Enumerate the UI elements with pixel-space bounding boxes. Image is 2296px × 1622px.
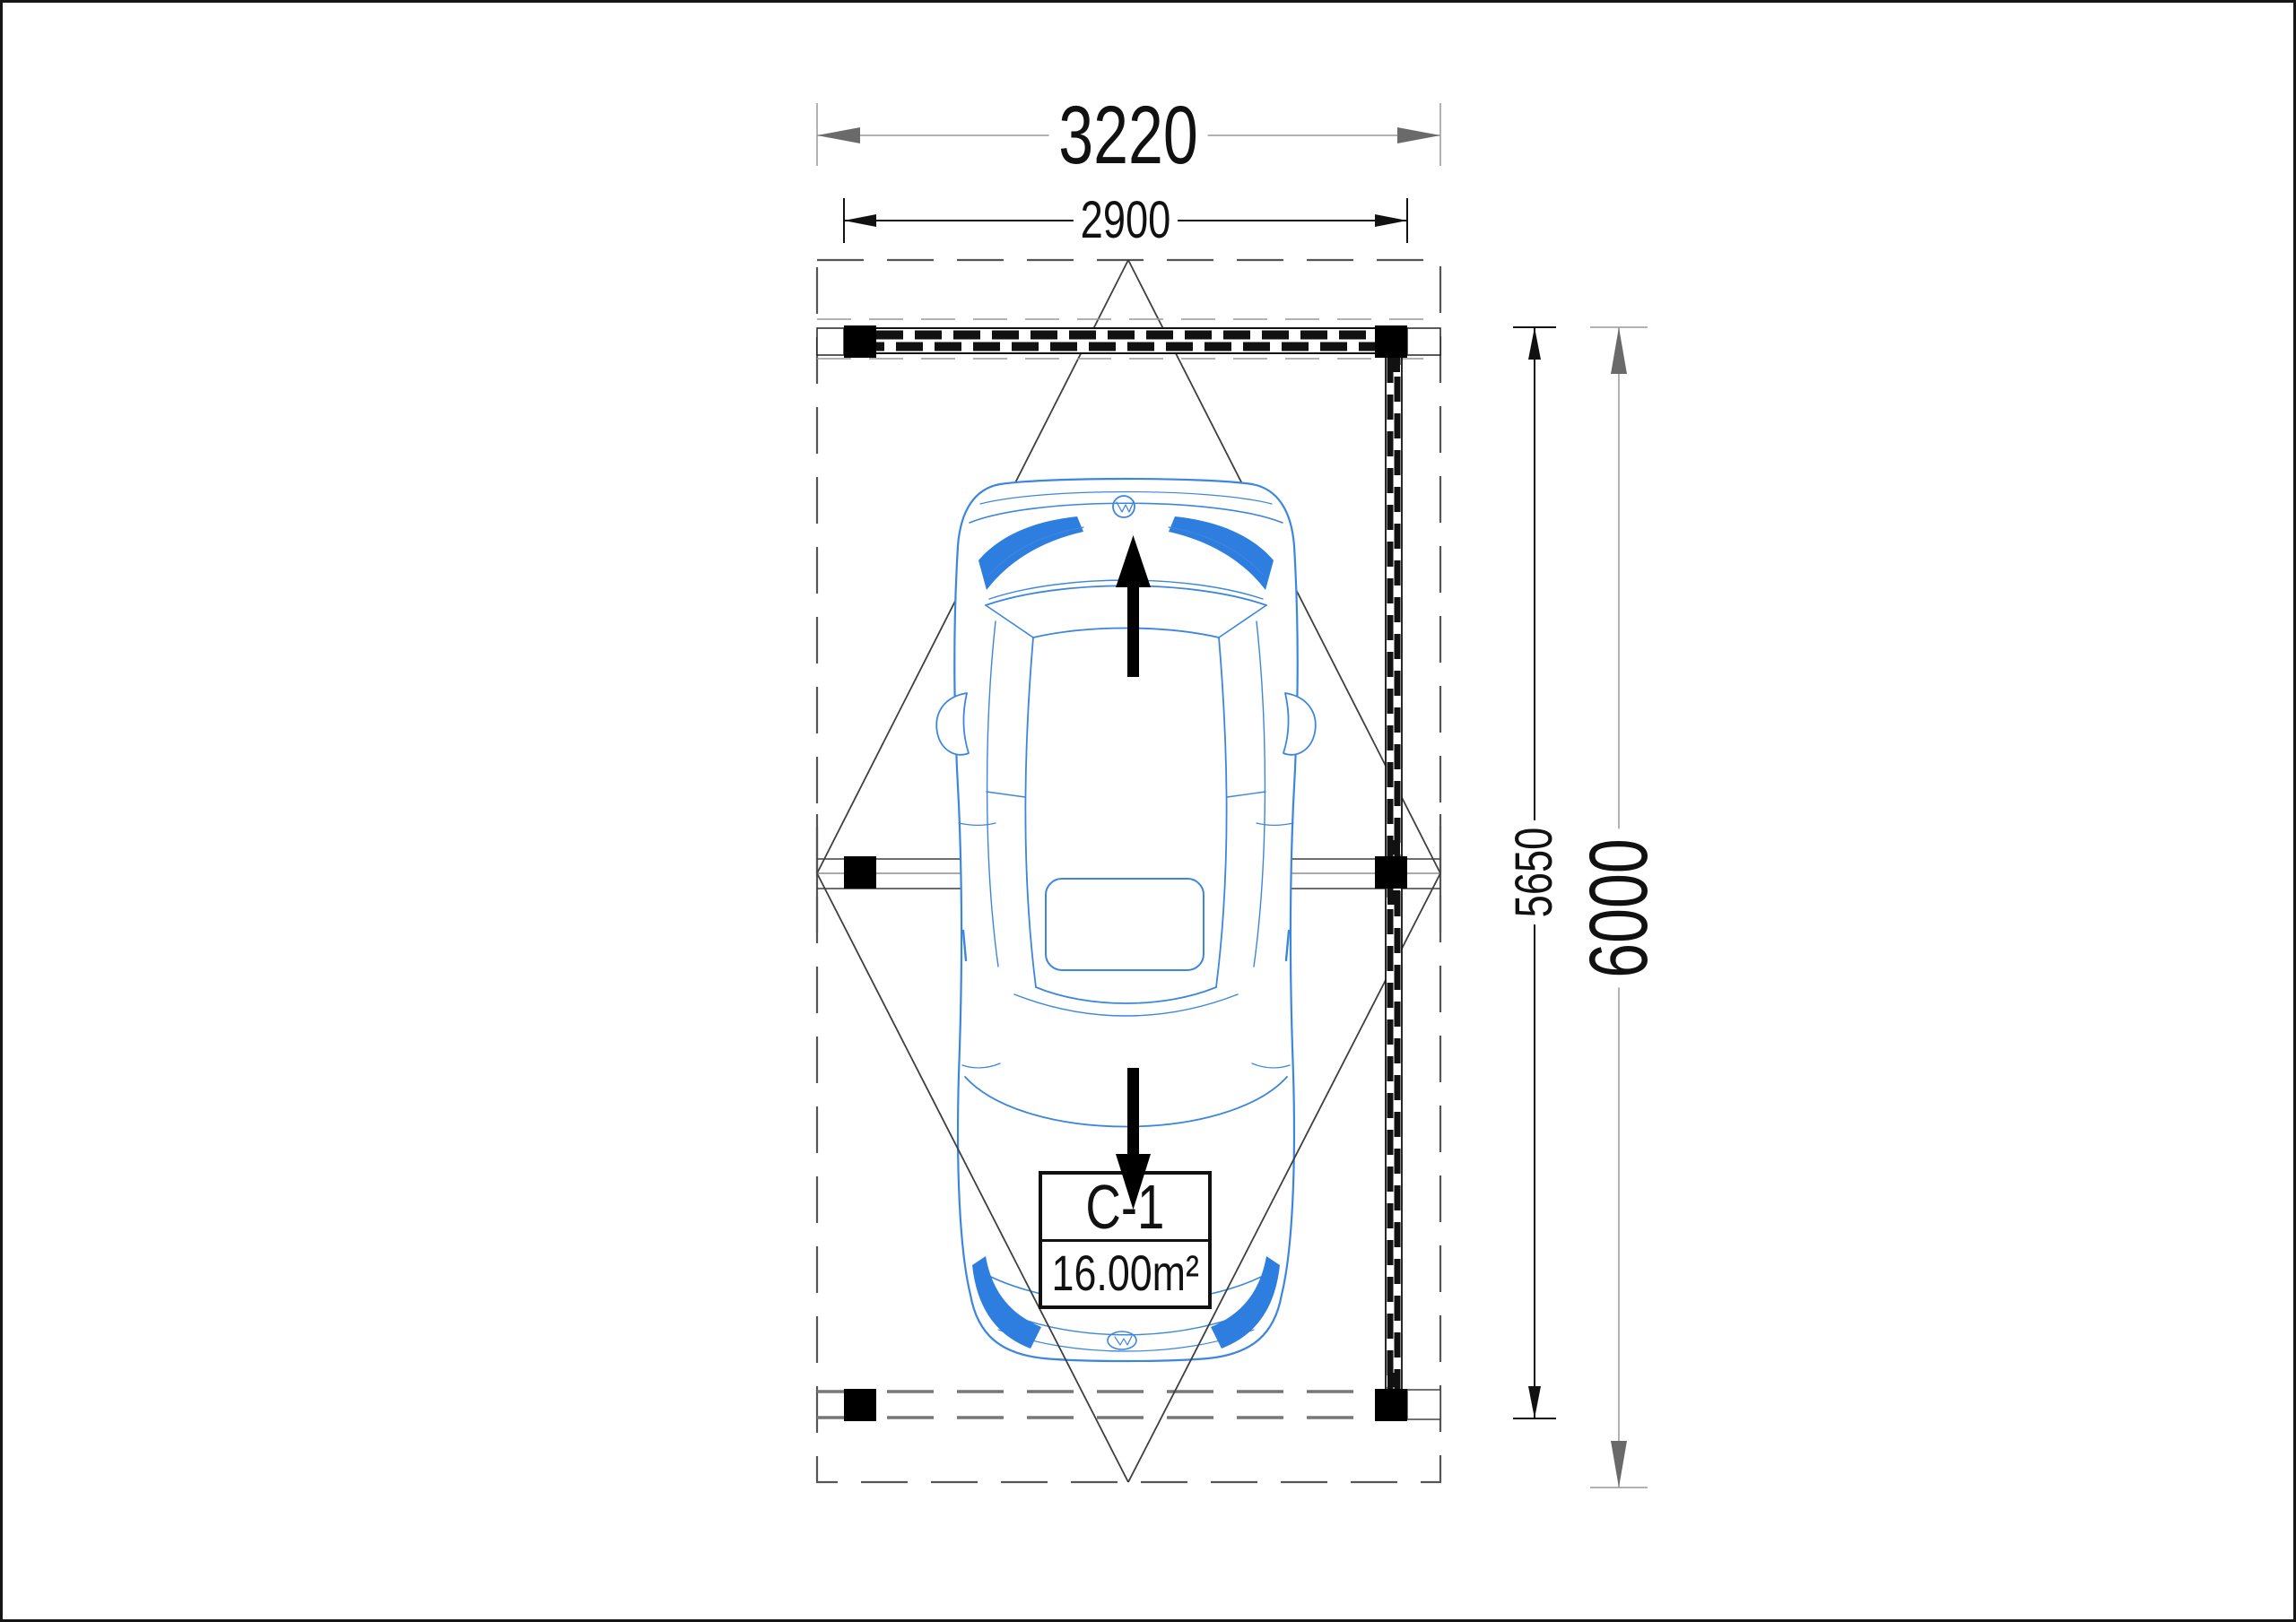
dim-text-post-span: 2900 [1074, 193, 1178, 248]
car-mirror-left [936, 693, 969, 755]
bottom-edge-dashes [817, 1392, 1440, 1418]
post-bottom-left [844, 1389, 876, 1421]
carport-floor-plan: C-1 16.00m² 3220 2900 5650 6000 [0, 0, 2296, 1622]
dim-text-overall-width: 3220 [1049, 92, 1208, 178]
post-top-left [844, 325, 876, 358]
beam-cap-right [1407, 328, 1440, 355]
post-mid-right [1375, 856, 1407, 889]
wall-cap-bottom [1407, 1390, 1440, 1419]
unit-id: C-1 [1042, 1175, 1208, 1242]
dim-text-overall-length: 6000 [1576, 829, 1662, 988]
sunroof [1046, 879, 1204, 970]
unit-area: 16.00m² [1042, 1242, 1208, 1306]
post-mid-left [844, 856, 876, 889]
top-wall-beam [876, 328, 1375, 353]
post-bottom-right [1375, 1389, 1407, 1421]
beam-cap-left [817, 328, 844, 355]
unit-label-box: C-1 16.00m² [1039, 1171, 1212, 1309]
dim-text-wall-length: 5650 [1507, 820, 1562, 924]
post-top-right [1375, 325, 1407, 358]
car-mirror-right [1283, 693, 1316, 755]
